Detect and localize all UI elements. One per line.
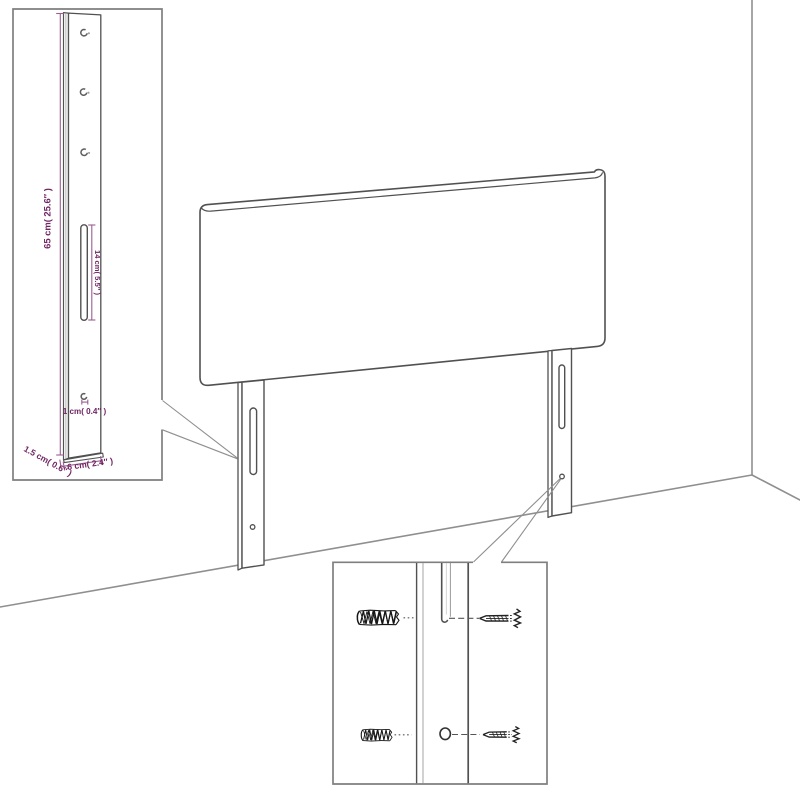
svg-text:1 cm( 0.4″ ): 1 cm( 0.4″ ) bbox=[63, 407, 107, 416]
svg-text:14 cm( 5.5″ ): 14 cm( 5.5″ ) bbox=[93, 250, 102, 295]
svg-text:65 cm( 25.6″ ): 65 cm( 25.6″ ) bbox=[42, 188, 53, 249]
